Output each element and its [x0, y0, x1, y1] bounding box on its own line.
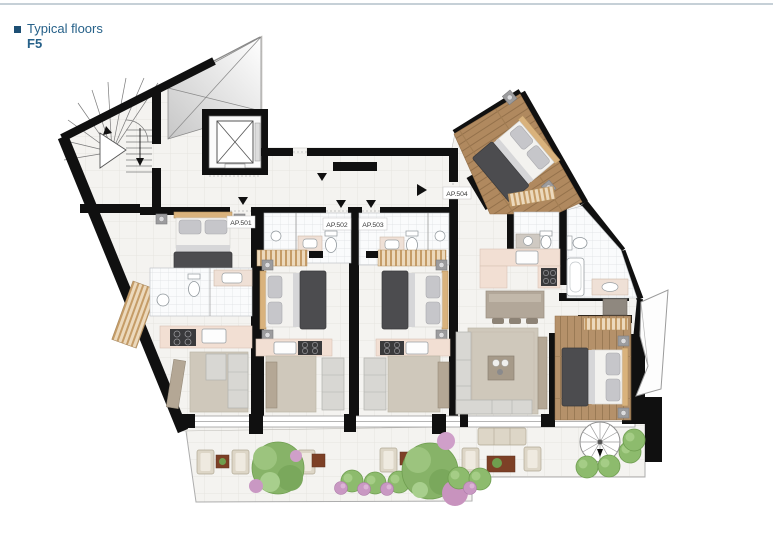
nightstand	[156, 214, 167, 224]
nightstand	[618, 408, 629, 418]
svg-text:AP.504: AP.504	[446, 191, 468, 198]
washer-icon	[157, 294, 169, 306]
bush	[576, 456, 598, 478]
side-table	[312, 454, 325, 467]
stool	[526, 318, 538, 324]
sink-icon	[385, 240, 399, 249]
nightstand	[262, 330, 273, 340]
living-room	[266, 356, 344, 412]
flower-bush	[464, 482, 477, 495]
tv-console	[438, 362, 449, 408]
kitchen	[376, 339, 450, 356]
svg-text:AP.503: AP.503	[362, 222, 384, 229]
bathroom-small	[514, 212, 559, 252]
bed	[260, 271, 326, 329]
toilet-icon	[189, 282, 200, 297]
shower-drain-icon	[435, 231, 445, 241]
toilet-icon	[573, 238, 587, 249]
nightstand	[436, 260, 447, 270]
unit-label-504: AP.504	[443, 187, 471, 199]
bed	[562, 348, 628, 406]
bush	[623, 429, 645, 451]
toilet-icon	[326, 238, 337, 253]
sink-icon	[303, 239, 317, 248]
svg-text:AP.502: AP.502	[326, 222, 348, 229]
sink-icon	[524, 237, 533, 246]
stool	[492, 318, 504, 324]
apartment-504	[454, 90, 637, 420]
bathroom	[150, 268, 252, 316]
tv-console	[538, 337, 547, 409]
toilet-icon	[541, 236, 551, 249]
living-room	[364, 356, 449, 412]
nightstand	[262, 260, 273, 270]
living-room	[456, 328, 547, 414]
floor-plan-svg: AP.501 AP.502 AP.503 AP.504	[0, 0, 773, 539]
nightstand	[618, 336, 629, 346]
sink-icon	[222, 273, 242, 283]
unit-label-503: AP.503	[359, 218, 387, 230]
elevator	[202, 109, 268, 175]
bedroom-2	[555, 316, 631, 420]
tree	[249, 442, 304, 494]
armchair	[524, 447, 541, 471]
bed	[382, 271, 448, 329]
armchair	[380, 448, 397, 472]
sink-icon	[516, 251, 538, 264]
living-room	[166, 352, 248, 412]
kitchen	[160, 326, 252, 348]
bathtub-icon	[567, 258, 584, 296]
wardrobe	[603, 299, 627, 315]
shower-drain-icon	[271, 231, 281, 241]
kitchen	[256, 339, 332, 356]
unit-label-501: AP.501	[227, 216, 255, 228]
flower-bush	[381, 483, 394, 496]
flower-bush	[358, 483, 371, 496]
coffee-table	[488, 356, 514, 380]
armchair	[197, 450, 214, 474]
flower-bush	[335, 482, 348, 495]
sink-icon	[602, 283, 618, 292]
bush	[598, 455, 620, 477]
outdoor-sofa	[478, 428, 526, 445]
armchair	[232, 450, 249, 474]
nightstand	[436, 330, 447, 340]
closet	[584, 318, 628, 330]
tv-console	[266, 362, 277, 408]
svg-text:AP.501: AP.501	[230, 220, 252, 227]
unit-label-502: AP.502	[323, 218, 351, 230]
stool	[509, 318, 521, 324]
